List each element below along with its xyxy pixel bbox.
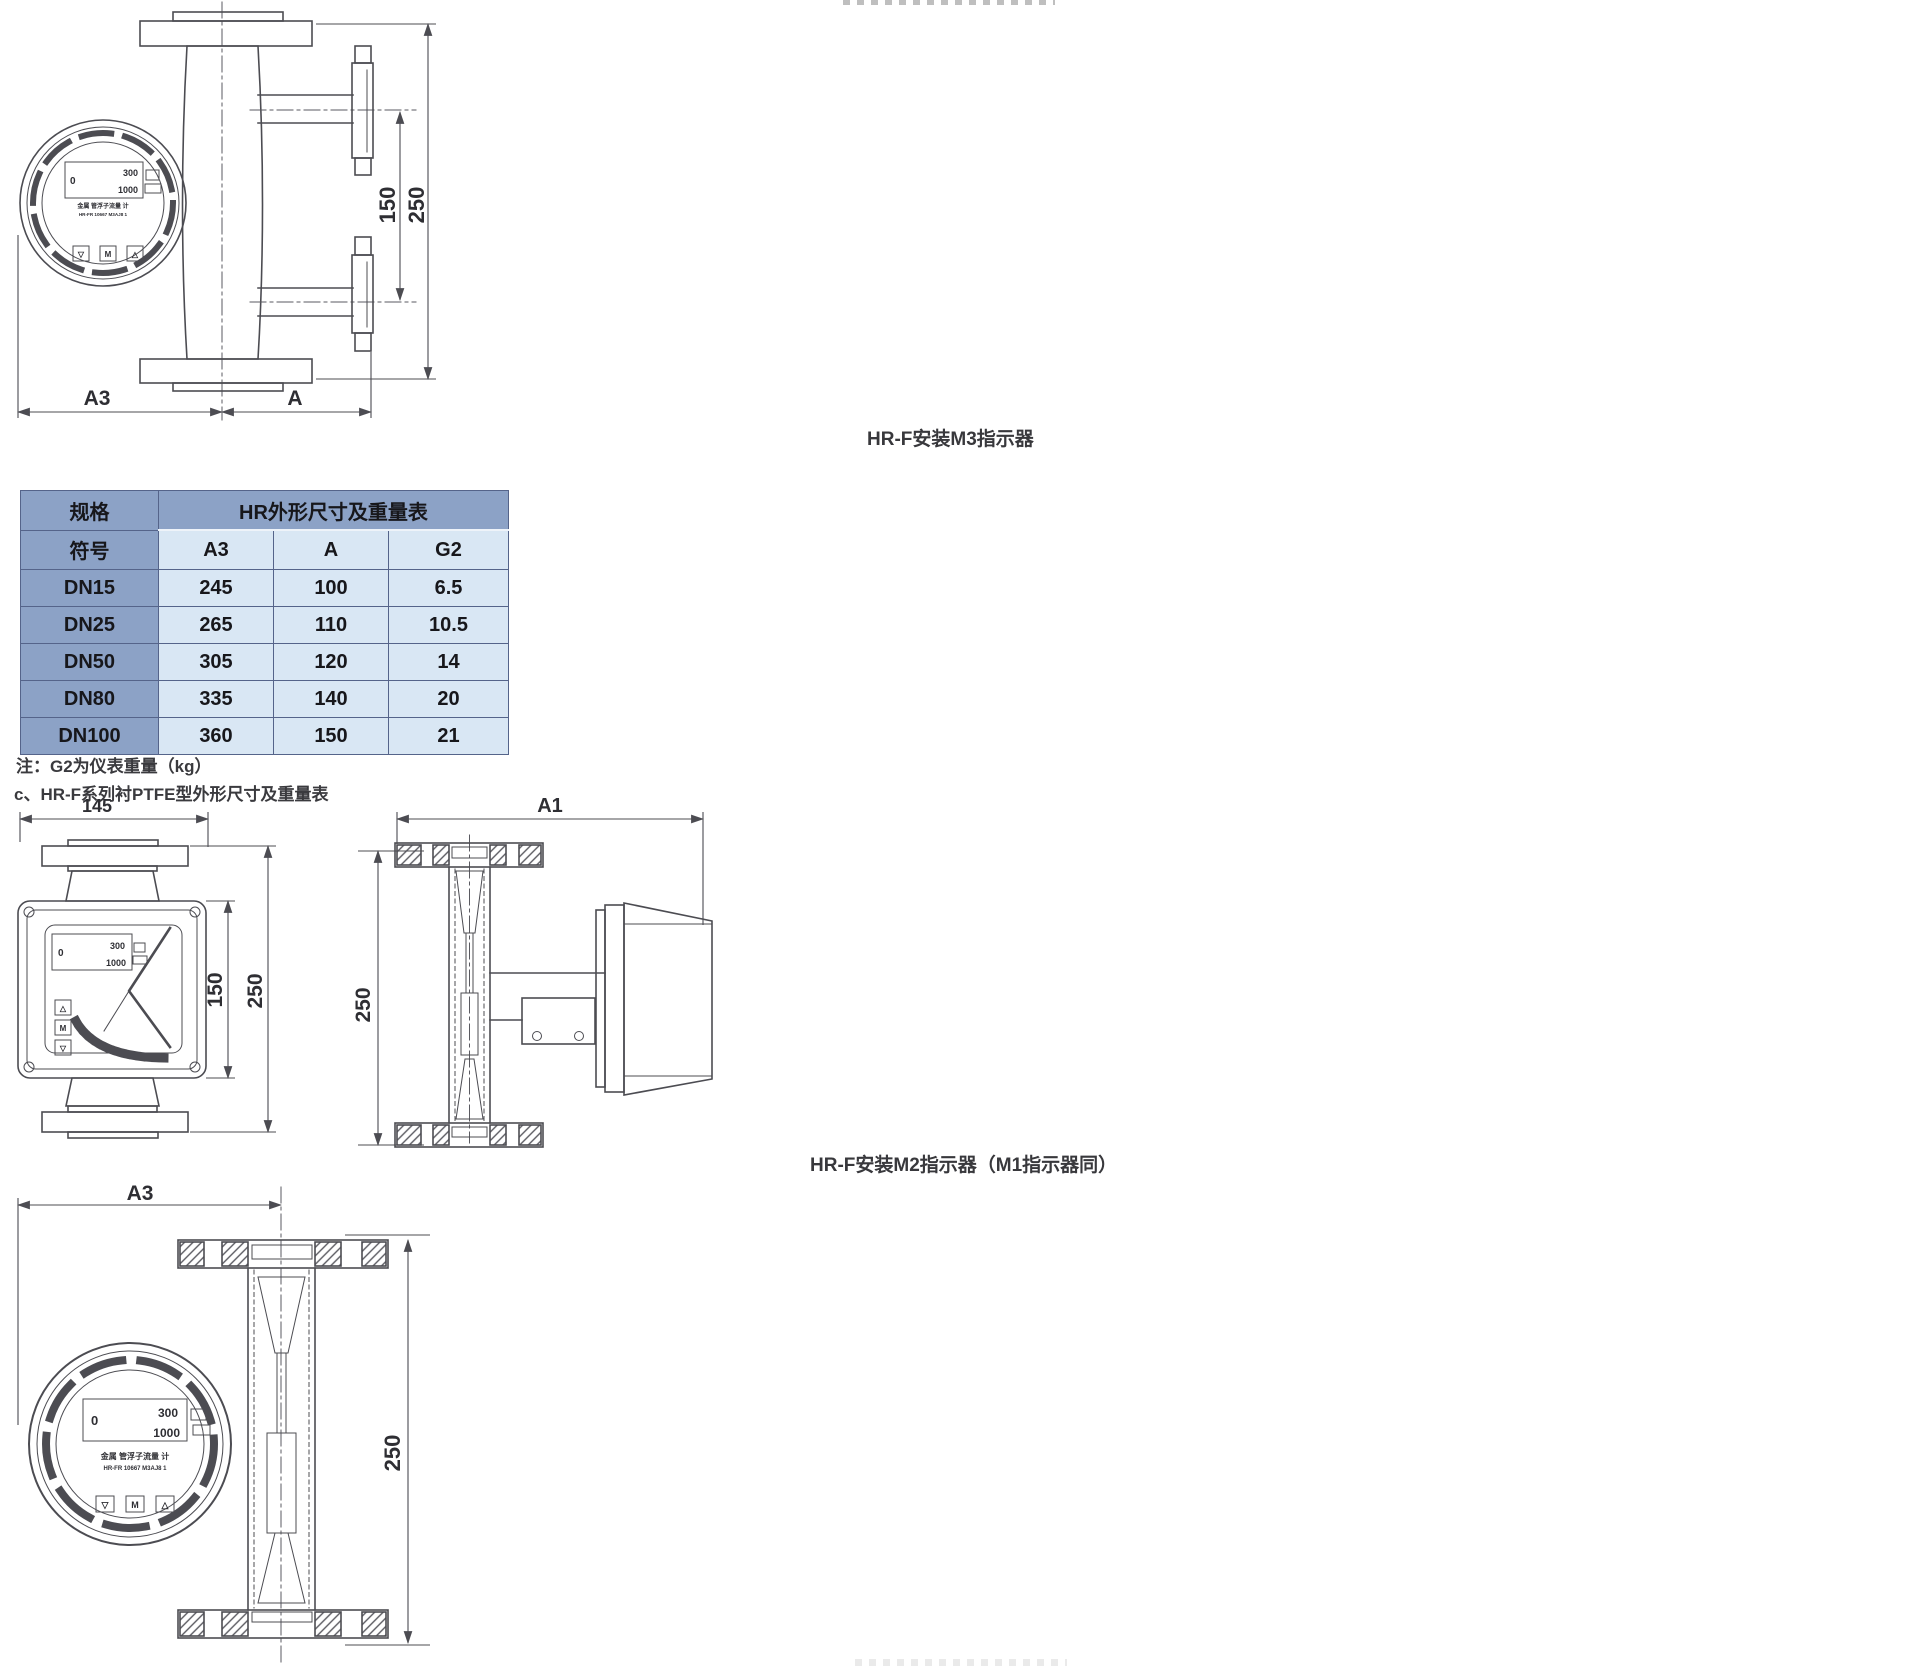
dimensions-weight-table: 规格 HR外形尺寸及重量表 符号 A3 A G2 DN15 245 100 6.… — [20, 490, 509, 755]
dim-150-label: 150 — [204, 972, 227, 1007]
lcd-zero: 0 — [70, 176, 76, 187]
dim-250-label: 250 — [404, 187, 429, 224]
table-corner-symbol: 符号 — [21, 530, 159, 570]
dim-a3-label: A3 — [127, 1182, 154, 1205]
cell: 110 — [274, 607, 389, 644]
cell: 120 — [274, 644, 389, 681]
lcd-range-bottom: 1000 — [153, 1426, 180, 1440]
cell: 245 — [159, 570, 274, 607]
cell: 305 — [159, 644, 274, 681]
indicator-gauge-front: 0 300 1000 金属 管浮子流量 计 HR-FR 10667 M3AJ8 … — [20, 120, 186, 286]
row-header: DN25 — [21, 607, 159, 644]
row-header: DN80 — [21, 681, 159, 718]
lcd-range-bottom: 1000 — [106, 958, 126, 968]
cropped-text-top — [843, 0, 1055, 5]
cell: 21 — [389, 718, 509, 755]
cell: 140 — [274, 681, 389, 718]
btn-down-icon: ▽ — [101, 1500, 110, 1510]
cell: 360 — [159, 718, 274, 755]
cell: 335 — [159, 681, 274, 718]
dim-a1-label: A1 — [537, 795, 563, 817]
gauge-model: HR-FR 10667 M3AJ8 1 — [103, 1466, 167, 1472]
btn-up-icon: △ — [59, 1004, 67, 1013]
btn-up-icon: △ — [161, 1500, 170, 1510]
table-row: DN25 265 110 10.5 — [21, 607, 509, 644]
lcd-zero: 0 — [58, 948, 64, 959]
row-header: DN15 — [21, 570, 159, 607]
table-row: DN15 245 100 6.5 — [21, 570, 509, 607]
cell: 100 — [274, 570, 389, 607]
lcd-range-top: 300 — [123, 168, 138, 178]
table-row: DN80 335 140 20 — [21, 681, 509, 718]
gauge-model: HR-FR 10667 M3AJ8 1 — [79, 212, 128, 217]
cropped-text-bottom — [855, 1659, 1067, 1666]
btn-up-icon: △ — [131, 250, 139, 259]
lcd-range-top: 300 — [110, 941, 125, 951]
note-g2-weight: 注：G2为仪表重量（kg） — [16, 752, 212, 777]
lcd-range-top: 300 — [158, 1406, 178, 1420]
drawing-m2-side-view: 0 300 1000 金属 管浮子流量 计 HR-FR 10667 M3AJ8 … — [0, 1185, 470, 1666]
ptfe-front-view — [18, 840, 206, 1138]
ptfe-side-view — [395, 835, 712, 1147]
dim-145-label: 145 — [82, 796, 112, 816]
table-row: DN50 305 120 14 — [21, 644, 509, 681]
table-title: HR外形尺寸及重量表 — [159, 491, 509, 531]
dim-250-label: 250 — [244, 973, 267, 1008]
cell: 265 — [159, 607, 274, 644]
table-row: DN100 360 150 21 — [21, 718, 509, 755]
dim-a-label: A — [287, 387, 302, 410]
cell: 20 — [389, 681, 509, 718]
col-header-g2: G2 — [389, 530, 509, 570]
btn-mode-icon: M — [105, 250, 112, 259]
btn-mode-icon: M — [60, 1024, 67, 1033]
cell: 10.5 — [389, 607, 509, 644]
cell: 6.5 — [389, 570, 509, 607]
row-header: DN50 — [21, 644, 159, 681]
gauge-label: 金属 管浮子流量 计 — [100, 1451, 169, 1461]
btn-down-icon: ▽ — [77, 250, 85, 259]
lcd-range-bottom: 1000 — [118, 185, 138, 195]
dim-250-label: 250 — [352, 987, 375, 1022]
caption-m3-indicator: HR-F安装M3指示器 — [867, 424, 1034, 451]
caption-m2-indicator: HR-F安装M2指示器（M1指示器同） — [810, 1150, 1117, 1177]
lcd-zero: 0 — [91, 1413, 98, 1428]
cell: 14 — [389, 644, 509, 681]
spec-page: { "page": {"bg": "#ffffff", "ink": "#4c4… — [0, 0, 1920, 1666]
table-corner-spec: 规格 — [21, 491, 159, 531]
btn-down-icon: ▽ — [59, 1044, 67, 1053]
cell: 150 — [274, 718, 389, 755]
m2-indicator-gauge: 0 300 1000 金属 管浮子流量 计 HR-FR 10667 M3AJ8 … — [29, 1343, 231, 1545]
drawing-m3-side-view: 0 300 1000 金属 管浮子流量 计 HR-FR 10667 M3AJ8 … — [0, 0, 470, 425]
col-header-a3: A3 — [159, 530, 274, 570]
dim-a3-label: A3 — [84, 387, 111, 410]
btn-mode-icon: M — [131, 1500, 139, 1510]
dim-250-label: 250 — [380, 1435, 405, 1472]
gauge-label: 金属 管浮子流量 计 — [76, 202, 128, 210]
row-header: DN100 — [21, 718, 159, 755]
col-header-a: A — [274, 530, 389, 570]
drawing-ptfe-front-and-side: 0 300 1000 △ M ▽ 145 150 250 — [0, 795, 780, 1175]
dim-150-label: 150 — [375, 187, 400, 224]
